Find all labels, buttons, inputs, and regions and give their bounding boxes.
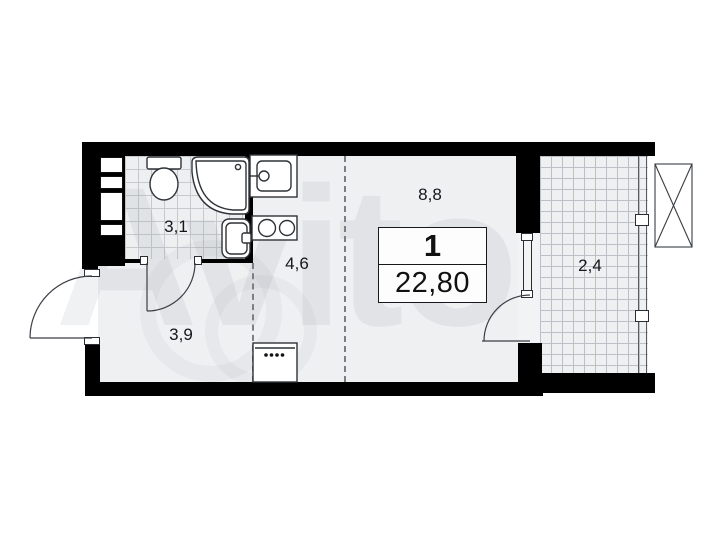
entry-door-jamb (84, 269, 100, 277)
wall-bottom (85, 382, 543, 396)
kitchen-area-label: 4,6 (275, 254, 319, 274)
balcony-window-glazing (523, 240, 532, 291)
wall-balcony-stub-top (516, 156, 540, 233)
vent-shaft-box (100, 192, 123, 221)
bathroom-door-jamb (194, 256, 202, 265)
wall-top (82, 142, 655, 156)
exterior-shaft-xbox (655, 164, 692, 247)
hall-area-label: 3,9 (159, 325, 203, 345)
bathroom-door-jamb (140, 256, 148, 265)
wall-bathroom-right (245, 156, 253, 263)
unit-total-area: 22,80 (379, 265, 486, 302)
balcony-outer-glazing (638, 156, 647, 373)
vent-shaft-box (100, 157, 123, 173)
living-area-label: 8,8 (408, 185, 452, 205)
vent-shaft-box (100, 176, 123, 189)
balcony-glazing-frame-mark (635, 214, 649, 226)
wall-balcony-bottom (542, 373, 655, 393)
bathroom-area-label: 3,1 (154, 217, 198, 237)
balcony-window-jamb (521, 290, 533, 298)
zone-divider-kitchen-living (344, 156, 346, 382)
balcony-glazing-frame-mark (635, 310, 649, 322)
zone-divider-hall-kitchen (252, 263, 254, 382)
balcony-area-label: 2,4 (568, 256, 612, 276)
unit-info-box: 1 22,80 (378, 227, 487, 303)
wall-bathroom-bottom-right (195, 259, 245, 263)
floorplan-canvas: Avito (0, 0, 720, 539)
entry-door-jamb (84, 337, 100, 345)
wall-balcony-stub-bottom (518, 343, 542, 393)
wall-left-upper (82, 142, 98, 269)
entry-door-swing (30, 276, 92, 338)
vent-shaft-box (100, 224, 123, 236)
bathroom-tile-floor (125, 156, 245, 259)
unit-rooms-count: 1 (379, 228, 486, 265)
